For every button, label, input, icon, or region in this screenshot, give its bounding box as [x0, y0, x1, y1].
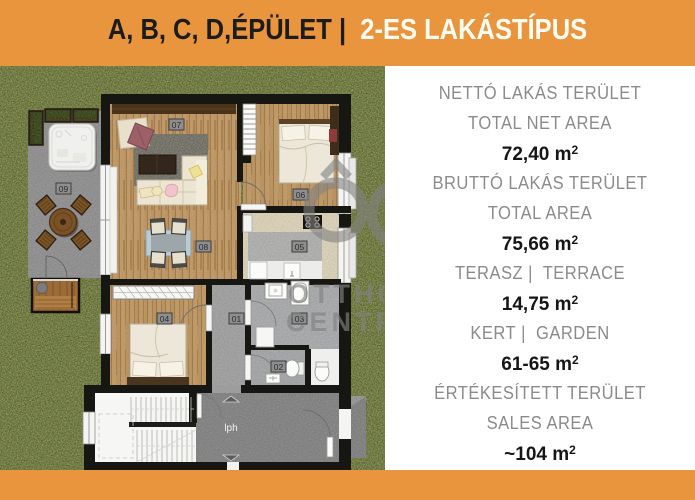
svg-text:lph: lph: [224, 423, 237, 434]
svg-text:CENTRUM: CENTRUM: [286, 307, 449, 337]
svg-text:08: 08: [199, 242, 209, 252]
svg-text:09: 09: [59, 184, 69, 194]
svg-text:07: 07: [172, 120, 182, 130]
svg-text:02: 02: [274, 362, 284, 372]
svg-text:06: 06: [296, 190, 306, 200]
svg-text:01: 01: [232, 314, 242, 324]
svg-text:05: 05: [295, 242, 305, 252]
svg-text:04: 04: [160, 314, 170, 324]
svg-text:OTTHON: OTTHON: [288, 279, 426, 309]
